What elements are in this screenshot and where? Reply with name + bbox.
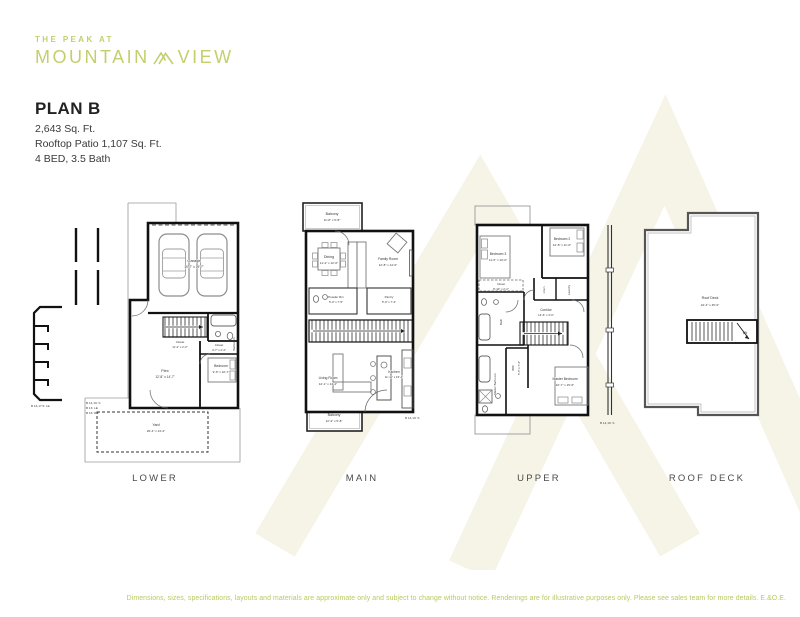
- room-label: Family Room: [378, 257, 398, 261]
- room-dims: 5'-0" x 7'-5": [329, 300, 343, 304]
- brand-word-mountain: MOUNTAIN: [35, 47, 150, 68]
- roof-deck-plan: Roof Deck 24'-4" x 45'-0" DN: [643, 196, 778, 431]
- stairs: [163, 317, 207, 337]
- plan-note: B 13: LE: [86, 406, 98, 410]
- room-dims: 12'-3" x 5'-8": [326, 419, 343, 423]
- plan-title: PLAN B: [35, 99, 162, 119]
- room-label: Powder Rm: [328, 295, 344, 299]
- room-dims: 12'-8" x 11'-6": [553, 243, 571, 247]
- legal-disclaimer: Dimensions, sizes, specifications, layou…: [0, 595, 786, 602]
- room-dims: 11'-8" x 5'-8": [324, 218, 341, 222]
- main-floor-plan: Balcony 11'-8" x 5'-8" Dining 11'-4" x 1…: [295, 198, 430, 438]
- room-label: Bedroom 3: [490, 252, 507, 256]
- brand-word-view: VIEW: [178, 47, 234, 68]
- room-label: Balcony: [326, 212, 339, 216]
- room-label: Flex: [161, 368, 169, 373]
- plan-rooftop-area: Rooftop Patio 1,107 Sq. Ft.: [35, 137, 162, 152]
- room-label: Bedroom: [214, 364, 228, 368]
- lower-floor-plan: Garage 19'-7" x 19'-7" Flex 12'-8" x 14'…: [28, 196, 250, 468]
- room-dims: 11'-4" x 12'-6": [320, 261, 338, 265]
- site-walls: [34, 228, 98, 400]
- room-dims: 12'-8" x 14'-7": [155, 375, 175, 379]
- room-label: Living Room: [319, 376, 338, 380]
- room-label: Laundry: [567, 284, 571, 295]
- room-label: Kitchen: [388, 370, 399, 374]
- stairs: [309, 320, 413, 342]
- room-dims: 12'-8" x 14'-0": [379, 263, 397, 267]
- room-label: Master Bedroom: [552, 377, 577, 381]
- room-dims: 19'-7" x 19'-7": [184, 265, 204, 269]
- floor-caption-lower: LOWER: [132, 473, 178, 484]
- plan-info: PLAN B 2,643 Sq. Ft. Rooftop Patio 1,107…: [35, 99, 162, 167]
- room-dims: 24'-4" x 45'-0": [701, 303, 719, 307]
- plan-note: B 16: RB: [86, 411, 98, 415]
- floor-caption-upper: UPPER: [517, 473, 561, 484]
- room-dims: 16'-7" x 15'-6": [556, 383, 574, 387]
- room-dims: 8'-10" x 2'-2": [493, 287, 509, 291]
- brand-name: MOUNTAIN VIEW: [35, 47, 234, 68]
- room-label: Closet: [497, 282, 505, 286]
- room-label: Garage: [187, 258, 201, 263]
- room-label: Bedroom 2: [554, 237, 571, 241]
- room-label: Balcony: [328, 413, 341, 417]
- room-dims: 12'-1" x 14'-4": [319, 382, 337, 386]
- room-label: Bath: [499, 319, 503, 326]
- room-label: WIC: [511, 364, 515, 371]
- floor-caption-main: MAIN: [346, 473, 379, 484]
- brand-logo: THE PEAK AT MOUNTAIN VIEW: [35, 35, 234, 68]
- roof-deck-outline: [645, 213, 758, 415]
- party-wall-legend: [606, 225, 614, 415]
- brand-tagline: THE PEAK AT: [35, 35, 234, 44]
- room-dims: 5'-5" x 7'-4": [517, 361, 521, 375]
- brochure-page: THE PEAK AT MOUNTAIN VIEW PLAN B 2,643 S…: [0, 0, 800, 617]
- room-label: Master Bathroom: [493, 373, 497, 395]
- room-label: Bathroom: [232, 337, 236, 351]
- upper-floor-plan: Bedroom 3 11'-6" x 10'-6" Bedroom 2 12'-…: [462, 198, 627, 438]
- plan-note: B 14,19: S: [405, 416, 419, 420]
- stairs-direction-label: DN: [743, 331, 748, 335]
- stairs: [520, 322, 568, 345]
- room-label: Closet: [176, 340, 185, 344]
- room-dims: 11'-2" x 2'-2": [172, 345, 187, 349]
- room-dims: 29'-4" x 13'-2": [147, 429, 165, 433]
- room-label: Yard: [152, 423, 159, 427]
- floor-caption-roof-deck: ROOF DECK: [669, 473, 745, 484]
- mountain-peaks-icon: [152, 49, 176, 66]
- balcony-outline: [303, 203, 362, 231]
- plan-note: B 16,17.5: LE: [31, 404, 50, 408]
- room-dims: 14'-6" x 4'-6": [538, 313, 554, 317]
- plan-area: 2,643 Sq. Ft.: [35, 122, 162, 137]
- room-label: Linen: [542, 286, 546, 293]
- room-label: Roof Deck: [702, 296, 719, 300]
- room-label: Dining: [324, 255, 334, 259]
- room-label: Closet: [215, 343, 224, 347]
- plan-bed-bath: 4 BED, 3.5 Bath: [35, 152, 162, 167]
- room-dims: 9'-6" x 10'-7": [213, 370, 230, 374]
- room-dims: 4'-7" x 2'-2": [212, 348, 226, 352]
- room-dims: 11'-11" x 15'-4": [385, 375, 403, 379]
- plan-note: B 14,19: S: [86, 401, 100, 405]
- room-label: Corridor: [540, 308, 552, 312]
- room-label: Pantry: [385, 295, 394, 299]
- room-dims: 5'-0" x 7'-4": [382, 300, 396, 304]
- lower-unit-walls: [130, 223, 238, 408]
- plan-note: B 14,16: S: [600, 421, 614, 425]
- room-dims: 11'-6" x 10'-6": [489, 258, 507, 262]
